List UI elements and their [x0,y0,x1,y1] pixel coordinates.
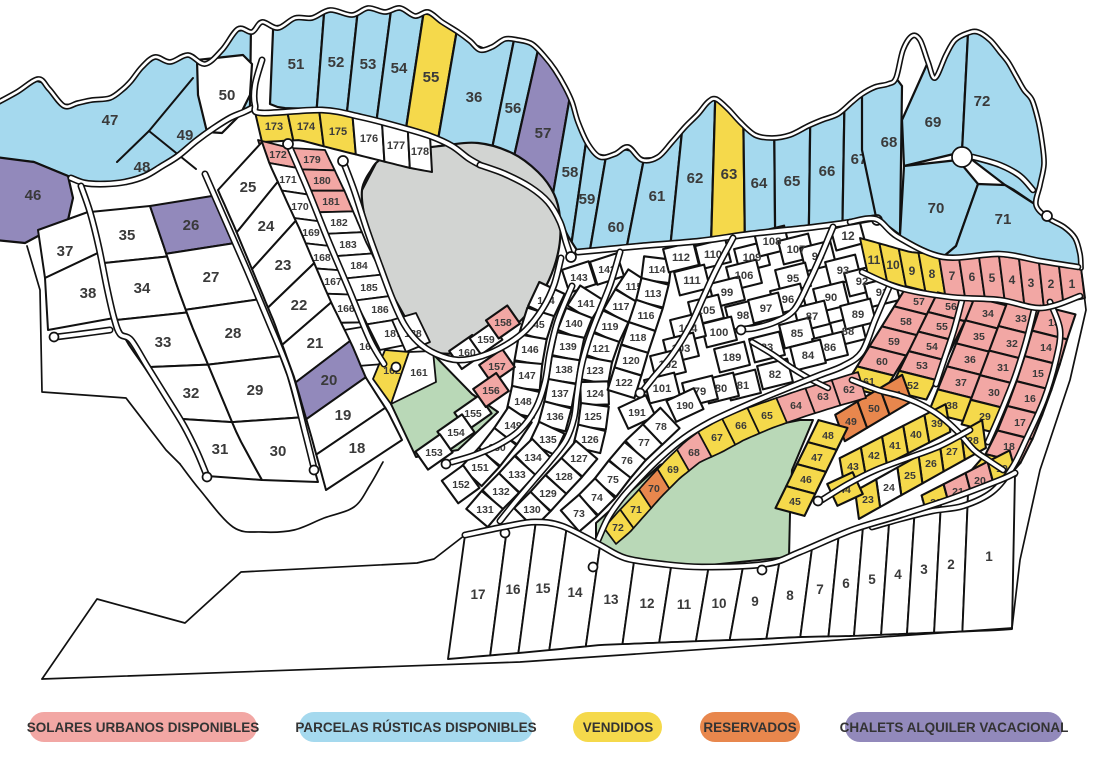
svg-text:106: 106 [735,270,754,282]
svg-text:5: 5 [989,271,996,285]
svg-text:120: 120 [622,355,640,367]
svg-text:50: 50 [868,403,880,415]
svg-text:111: 111 [683,275,700,287]
svg-text:72: 72 [612,522,624,534]
svg-text:151: 151 [471,462,489,474]
svg-text:113: 113 [645,288,662,300]
svg-text:35: 35 [973,331,985,343]
svg-text:11: 11 [677,597,692,612]
svg-text:96: 96 [782,294,794,306]
svg-text:108: 108 [763,236,782,248]
svg-text:93: 93 [837,265,849,277]
svg-text:17: 17 [1014,417,1026,429]
svg-text:16: 16 [505,582,521,597]
svg-text:88: 88 [842,326,854,338]
svg-text:138: 138 [555,364,573,376]
svg-text:26: 26 [925,458,937,470]
svg-text:131: 131 [476,504,494,516]
svg-text:140: 140 [565,318,583,330]
svg-text:109: 109 [743,252,762,264]
svg-text:13: 13 [603,592,619,607]
svg-text:125: 125 [584,411,602,423]
svg-text:11: 11 [868,253,881,267]
svg-text:40: 40 [910,429,922,441]
svg-text:4: 4 [894,567,902,582]
svg-text:25: 25 [240,179,257,196]
svg-text:53: 53 [916,360,928,372]
svg-text:147: 147 [518,370,536,382]
svg-text:29: 29 [247,382,264,399]
svg-text:30: 30 [270,443,287,460]
svg-text:70: 70 [648,483,660,495]
svg-text:27: 27 [203,269,220,286]
svg-text:2: 2 [947,557,955,572]
svg-text:36: 36 [964,354,976,366]
svg-text:69: 69 [667,464,679,476]
svg-text:177: 177 [387,140,405,152]
svg-text:186: 186 [371,304,389,316]
svg-text:14: 14 [567,585,583,600]
svg-text:189: 189 [723,352,742,364]
svg-text:15: 15 [535,581,551,596]
svg-text:22: 22 [291,297,308,314]
svg-text:34: 34 [134,280,151,297]
svg-text:46: 46 [800,474,812,486]
svg-text:25: 25 [904,470,916,482]
svg-text:63: 63 [817,391,829,403]
svg-text:64: 64 [790,400,802,412]
svg-text:99: 99 [721,287,733,299]
svg-text:176: 176 [360,133,378,145]
svg-text:156: 156 [482,385,500,397]
svg-text:32: 32 [1006,338,1018,350]
svg-text:47: 47 [102,112,119,129]
svg-text:53: 53 [360,56,377,73]
svg-text:10: 10 [711,596,726,611]
svg-text:136: 136 [546,411,564,423]
svg-text:61: 61 [649,188,666,205]
svg-text:3: 3 [920,562,928,577]
svg-text:67: 67 [711,432,723,444]
svg-text:12: 12 [841,229,855,243]
svg-text:158: 158 [494,317,512,329]
svg-text:49: 49 [845,416,857,428]
svg-text:78: 78 [655,421,667,433]
svg-text:31: 31 [212,441,229,458]
svg-text:134: 134 [524,452,542,464]
svg-text:58: 58 [562,164,579,181]
svg-text:161: 161 [410,367,428,379]
svg-text:10: 10 [886,258,900,272]
svg-text:119: 119 [602,321,619,333]
svg-text:RESERVADOS: RESERVADOS [703,720,796,735]
svg-text:36: 36 [466,89,483,106]
svg-text:182: 182 [330,217,348,229]
svg-text:20: 20 [321,372,338,389]
svg-text:2: 2 [1048,277,1055,291]
svg-text:157: 157 [488,361,506,373]
svg-text:1: 1 [1069,277,1076,291]
svg-text:5: 5 [868,572,876,587]
svg-text:127: 127 [570,453,588,465]
svg-text:PARCELAS RÚSTICAS DISPONIBLES: PARCELAS RÚSTICAS DISPONIBLES [295,720,536,735]
svg-text:190: 190 [676,400,694,412]
svg-text:48: 48 [822,430,834,442]
svg-text:50: 50 [219,87,236,104]
svg-text:34: 34 [982,308,994,320]
svg-text:181: 181 [322,196,340,208]
svg-text:87: 87 [806,311,818,323]
svg-text:126: 126 [581,434,599,446]
svg-text:130: 130 [523,504,541,516]
svg-text:66: 66 [819,163,836,180]
svg-text:86: 86 [824,342,836,354]
svg-text:70: 70 [928,200,945,217]
svg-text:3: 3 [1028,276,1035,290]
svg-text:154: 154 [447,427,465,439]
svg-text:23: 23 [862,494,874,506]
svg-text:26: 26 [183,217,200,234]
svg-text:17: 17 [470,587,485,602]
svg-text:148: 148 [514,396,532,408]
svg-text:7: 7 [816,582,824,597]
svg-text:58: 58 [900,316,912,328]
svg-text:59: 59 [579,191,596,208]
svg-text:54: 54 [391,60,408,77]
svg-text:47: 47 [811,452,823,464]
svg-text:CHALETS ALQUILER VACACIONAL: CHALETS ALQUILER VACACIONAL [840,720,1069,735]
svg-text:55: 55 [423,69,440,86]
svg-text:55: 55 [936,321,948,333]
svg-text:69: 69 [925,114,942,131]
svg-text:73: 73 [573,508,585,520]
svg-text:185: 185 [360,282,378,294]
svg-text:56: 56 [945,301,957,313]
svg-text:56: 56 [505,100,522,117]
svg-text:122: 122 [615,377,633,389]
svg-text:82: 82 [769,369,781,381]
svg-text:129: 129 [539,488,557,500]
svg-text:66: 66 [735,420,747,432]
svg-text:97: 97 [760,303,772,315]
svg-text:31: 31 [997,362,1009,374]
svg-text:24: 24 [883,482,895,494]
svg-text:28: 28 [225,325,242,342]
svg-text:68: 68 [881,134,898,151]
svg-text:174: 174 [297,121,316,133]
svg-text:51: 51 [288,56,305,73]
svg-text:178: 178 [411,146,429,158]
svg-text:57: 57 [535,125,552,142]
svg-text:143: 143 [570,272,588,284]
svg-text:52: 52 [907,380,919,392]
svg-text:152: 152 [452,479,470,491]
svg-text:37: 37 [955,377,967,389]
svg-text:9: 9 [751,594,759,609]
svg-text:128: 128 [555,471,573,483]
svg-text:15: 15 [1032,368,1044,380]
svg-text:121: 121 [592,343,610,355]
svg-text:24: 24 [258,218,275,235]
svg-text:71: 71 [995,211,1012,228]
svg-text:153: 153 [425,447,443,459]
svg-text:118: 118 [630,332,647,344]
svg-text:124: 124 [586,388,604,400]
svg-text:191: 191 [628,407,646,419]
svg-text:132: 132 [492,486,510,498]
svg-text:75: 75 [607,474,619,486]
svg-text:7: 7 [949,269,956,283]
svg-text:52: 52 [328,54,345,71]
svg-text:6: 6 [842,576,850,591]
svg-text:169: 169 [302,227,320,239]
svg-text:167: 167 [324,276,342,288]
svg-text:90: 90 [825,292,837,304]
svg-text:183: 183 [339,239,357,251]
svg-text:89: 89 [852,309,864,321]
svg-text:6: 6 [969,270,976,284]
svg-text:65: 65 [784,173,801,190]
svg-text:100: 100 [710,327,729,339]
svg-text:81: 81 [737,380,749,392]
svg-text:38: 38 [80,285,97,302]
svg-text:30: 30 [988,387,1000,399]
svg-text:59: 59 [888,336,900,348]
svg-text:23: 23 [275,257,292,274]
svg-text:14: 14 [1040,342,1052,354]
svg-text:18: 18 [349,440,366,457]
svg-text:135: 135 [539,434,557,446]
svg-text:VENDIDOS: VENDIDOS [583,720,654,735]
svg-text:12: 12 [639,596,654,611]
svg-text:98: 98 [737,310,749,322]
svg-text:57: 57 [913,296,925,308]
svg-text:74: 74 [591,492,603,504]
svg-text:184: 184 [350,260,368,272]
svg-text:168: 168 [313,252,331,264]
svg-text:37: 37 [57,243,74,260]
svg-text:9: 9 [909,264,916,278]
svg-text:62: 62 [687,170,704,187]
svg-text:175: 175 [329,126,347,138]
svg-text:71: 71 [630,504,642,516]
svg-text:80: 80 [715,383,727,395]
svg-text:62: 62 [843,384,855,396]
svg-text:92: 92 [856,276,868,288]
svg-text:139: 139 [559,341,577,353]
svg-text:117: 117 [613,301,630,313]
svg-text:1: 1 [985,549,993,564]
svg-text:170: 170 [291,201,309,213]
svg-text:21: 21 [307,335,324,352]
svg-text:65: 65 [761,410,773,422]
svg-text:133: 133 [508,469,526,481]
svg-text:85: 85 [791,328,803,340]
svg-text:171: 171 [279,174,297,186]
svg-text:8: 8 [929,267,936,281]
svg-text:137: 137 [551,388,569,400]
svg-text:155: 155 [464,408,482,420]
svg-text:38: 38 [946,400,958,412]
svg-text:35: 35 [119,227,136,244]
svg-text:60: 60 [876,356,888,368]
svg-text:8: 8 [786,588,794,603]
svg-text:63: 63 [721,166,738,183]
svg-text:27: 27 [946,446,958,458]
svg-text:114: 114 [649,264,666,276]
svg-text:84: 84 [802,350,815,362]
svg-text:72: 72 [974,93,991,110]
svg-text:33: 33 [1015,313,1027,325]
svg-text:64: 64 [751,175,768,192]
svg-text:4: 4 [1009,273,1016,287]
svg-text:172: 172 [269,149,287,161]
svg-text:54: 54 [926,341,938,353]
svg-text:46: 46 [25,187,42,204]
svg-text:77: 77 [638,437,650,449]
svg-text:116: 116 [638,310,655,322]
svg-text:32: 32 [183,385,200,402]
svg-text:95: 95 [787,273,799,285]
svg-text:107: 107 [787,244,806,256]
svg-text:179: 179 [303,154,321,166]
svg-text:173: 173 [265,121,283,133]
svg-text:76: 76 [621,455,633,467]
svg-text:141: 141 [577,298,595,310]
svg-text:19: 19 [335,407,352,424]
svg-text:33: 33 [155,334,172,351]
svg-text:180: 180 [313,175,331,187]
svg-text:159: 159 [477,334,495,346]
svg-text:SOLARES URBANOS DISPONIBLES: SOLARES URBANOS DISPONIBLES [27,720,260,735]
svg-text:60: 60 [608,219,625,236]
svg-text:101: 101 [653,383,672,395]
svg-text:16: 16 [1024,393,1036,405]
svg-text:41: 41 [889,440,901,452]
svg-text:123: 123 [586,365,604,377]
svg-text:68: 68 [688,447,700,459]
svg-text:43: 43 [847,461,859,473]
svg-text:45: 45 [789,496,801,508]
svg-text:146: 146 [521,344,539,356]
svg-text:112: 112 [672,252,690,264]
svg-text:42: 42 [868,450,880,462]
